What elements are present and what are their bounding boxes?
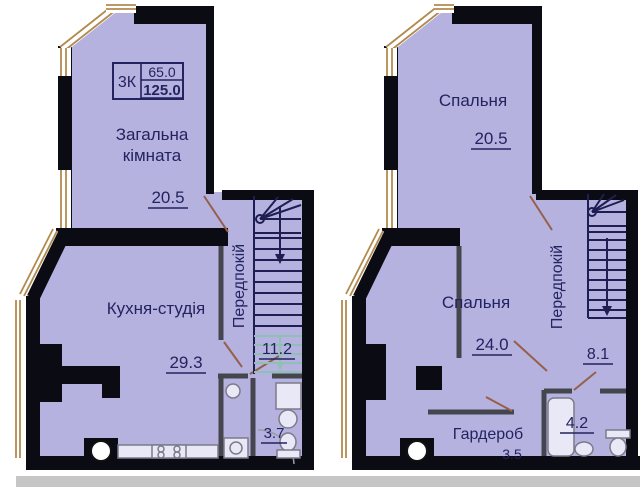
level1-plan: 3К 65.0 125.0 Загальна кімната 20.5 Кухн…: [13, 2, 314, 470]
bedroom-top-name: Спальня: [439, 91, 507, 110]
bathroom-area: 4.2: [566, 415, 588, 432]
living-area-label: 65.0: [148, 64, 175, 80]
sink-unit-icon: [276, 383, 301, 409]
kitchen-area: 29.3: [169, 353, 202, 372]
hallway-name: Передпокій: [549, 245, 566, 329]
floorplan-canvas: 3К 65.0 125.0 Загальна кімната 20.5 Кухн…: [0, 0, 640, 487]
basin-icon: [575, 442, 593, 456]
washer-icon: [224, 438, 248, 458]
hallway-area: 11.2: [262, 341, 292, 358]
living-room-name-line2: кімната: [123, 146, 182, 165]
vent-icon: [226, 384, 240, 398]
toilet-icon: [610, 438, 626, 456]
rooms-count-label: 3К: [118, 74, 137, 91]
level2-plan: Спальня 20.5 Спальня 24.0 Передпокій 8.1…: [339, 2, 640, 470]
bathroom-area: 3.7: [264, 425, 285, 442]
total-area-label: 125.0: [143, 82, 181, 99]
hallway-name: Передпокій: [231, 244, 248, 328]
wardrobe-area: 3.5: [502, 446, 522, 462]
living-room-name-line1: Загальна: [116, 125, 189, 144]
hallway-area: 8.1: [587, 346, 609, 363]
shadow-strip: [16, 476, 640, 487]
bedroom-main-name: Спальня: [442, 293, 510, 312]
bedroom-top-area: 20.5: [474, 129, 507, 148]
stove-icon: [152, 445, 186, 458]
living-room-area: 20.5: [151, 188, 184, 207]
wardrobe-name: Гардероб: [453, 426, 523, 443]
kitchen-name: Кухня-студія: [107, 299, 205, 318]
bedroom-main-area: 24.0: [475, 335, 508, 354]
